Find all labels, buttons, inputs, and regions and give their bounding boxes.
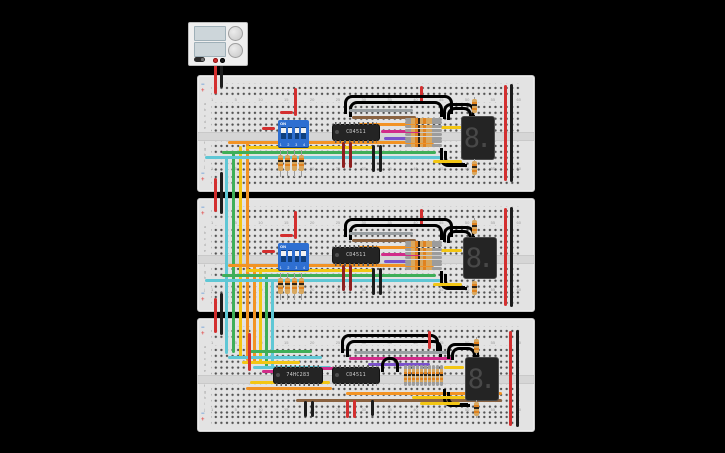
resistor[interactable] (285, 150, 290, 177)
wire[interactable] (222, 151, 436, 154)
wire[interactable] (205, 279, 441, 282)
dip-on-label: ON (280, 121, 286, 126)
wire[interactable] (444, 366, 464, 369)
resistor[interactable] (405, 248, 442, 251)
wire[interactable] (246, 387, 332, 390)
circuit-canvas: −+ 151015202530354045505560 abcde fghij … (0, 0, 725, 453)
wire[interactable] (246, 269, 374, 272)
dip-position-numbers: 1 2 3 4 (278, 143, 309, 147)
wire[interactable] (304, 401, 307, 417)
wire[interactable] (420, 402, 460, 405)
row-letters-top: abcde (204, 345, 209, 373)
resistor[interactable] (405, 256, 442, 259)
ic-label: CD4511 (333, 252, 379, 258)
wire[interactable] (262, 127, 275, 130)
wire[interactable] (433, 160, 462, 163)
wire[interactable] (444, 274, 465, 289)
rail-plus-label: + (201, 417, 209, 423)
wire[interactable] (381, 357, 399, 372)
ic-cd4511-board3[interactable]: CD4511 (333, 368, 379, 383)
wire[interactable] (294, 211, 297, 239)
row-letters-bottom: fghij (204, 384, 209, 412)
wire[interactable] (214, 298, 217, 333)
dip-slider[interactable] (295, 127, 300, 139)
wire[interactable] (294, 88, 297, 116)
rail-labels: −+ (201, 171, 209, 183)
rail-plus-label: + (201, 331, 209, 337)
wire[interactable] (342, 142, 345, 168)
resistor[interactable] (405, 241, 442, 244)
resistor[interactable] (405, 137, 442, 140)
wire[interactable] (214, 178, 217, 212)
dip-slider[interactable] (288, 127, 293, 139)
resistor[interactable] (405, 129, 442, 132)
wire[interactable] (433, 283, 462, 286)
resistor[interactable] (420, 365, 423, 386)
resistor[interactable] (405, 144, 442, 147)
wire[interactable] (228, 356, 322, 359)
rail-plus-label: + (201, 297, 209, 303)
wire[interactable] (280, 111, 293, 114)
dip-slider[interactable] (301, 250, 306, 262)
wire[interactable] (246, 146, 374, 149)
row-letters-bottom: fghij (204, 141, 209, 169)
dip-switch-2[interactable]: ON 1 2 3 4 (278, 243, 309, 270)
resistor[interactable] (278, 150, 283, 177)
rail-plus-label: + (201, 211, 209, 217)
resistor[interactable] (405, 121, 442, 124)
psu-current-display (194, 42, 226, 57)
dip-sliders[interactable] (281, 127, 306, 139)
resistor[interactable] (405, 260, 442, 263)
wire[interactable] (280, 234, 293, 237)
wire[interactable] (265, 274, 268, 367)
dip-slider[interactable] (281, 250, 286, 262)
row-letters-top: abcde (204, 225, 209, 253)
wire[interactable] (222, 274, 436, 277)
resistor[interactable] (285, 273, 290, 300)
wire[interactable] (248, 333, 251, 371)
resistor[interactable] (472, 97, 477, 115)
wire[interactable] (441, 126, 462, 129)
rail-labels: −+ (201, 291, 209, 303)
resistor[interactable] (440, 365, 443, 386)
wire[interactable] (246, 141, 249, 361)
ic-label: CD4511 (333, 129, 379, 135)
wire[interactable] (510, 84, 513, 182)
resistor[interactable] (405, 252, 442, 255)
wire[interactable] (262, 250, 275, 253)
wire[interactable] (320, 367, 334, 370)
wire[interactable] (349, 142, 352, 168)
wire[interactable] (379, 145, 382, 172)
wire[interactable] (346, 400, 349, 418)
dip-slider[interactable] (301, 127, 306, 139)
ic-label: 74HC283 (274, 372, 322, 378)
dip-slider[interactable] (288, 250, 293, 262)
psu-negative-terminal[interactable] (220, 58, 225, 63)
resistor[interactable] (405, 244, 442, 247)
psu-voltage-display (194, 26, 226, 41)
dip-position-numbers: 1 2 3 4 (278, 266, 309, 270)
wire[interactable] (220, 172, 223, 214)
dip-switch-1[interactable]: ON 1 2 3 4 (278, 120, 309, 147)
psu-positive-terminal[interactable] (213, 58, 218, 63)
row-letters-bottom: fghij (204, 264, 209, 292)
seven-segment-display-2[interactable]: 8. (463, 237, 497, 279)
resistor[interactable] (404, 365, 407, 386)
resistor[interactable] (299, 273, 304, 300)
psu-voltage-knob[interactable] (228, 26, 243, 41)
dip-on-label: ON (280, 244, 286, 249)
wire[interactable] (372, 268, 375, 295)
resistor[interactable] (428, 365, 431, 386)
wire[interactable] (225, 156, 228, 354)
resistor[interactable] (412, 365, 415, 386)
psu-current-knob[interactable] (228, 43, 243, 58)
display-digit: 8. (464, 125, 489, 152)
wire[interactable] (504, 85, 507, 181)
wire[interactable] (205, 156, 441, 159)
wire[interactable] (516, 330, 519, 427)
resistor[interactable] (292, 273, 297, 300)
resistor[interactable] (299, 150, 304, 177)
wire[interactable] (509, 331, 512, 426)
seven-segment-display-3[interactable]: 8. (465, 357, 499, 401)
resistor[interactable] (416, 365, 419, 386)
wire[interactable] (354, 351, 448, 354)
ic-cd4511-board1[interactable]: CD4511 (333, 125, 379, 140)
rail-labels: −+ (201, 411, 209, 423)
wire[interactable] (228, 264, 434, 267)
wire[interactable] (228, 141, 434, 144)
resistor[interactable] (424, 365, 427, 386)
wire[interactable] (379, 268, 382, 295)
wire[interactable] (510, 207, 513, 307)
psu-power-button[interactable] (194, 57, 205, 62)
resistor[interactable] (405, 125, 442, 128)
wire[interactable] (311, 401, 314, 417)
row-letters-top: abcde (204, 102, 209, 130)
resistor[interactable] (472, 279, 477, 297)
dip-slider[interactable] (295, 250, 300, 262)
resistor[interactable] (408, 365, 411, 386)
wire[interactable] (232, 151, 235, 353)
resistor[interactable] (278, 273, 283, 300)
resistor[interactable] (432, 365, 435, 386)
dip-slider[interactable] (281, 127, 286, 139)
wire[interactable] (342, 265, 345, 291)
wire[interactable] (371, 400, 374, 416)
wire[interactable] (250, 350, 312, 353)
power-supply[interactable] (188, 22, 248, 66)
rail-labels: −+ (201, 325, 209, 337)
resistor[interactable] (474, 337, 479, 355)
wire[interactable] (412, 396, 465, 399)
resistor[interactable] (405, 118, 442, 121)
wire[interactable] (372, 145, 375, 172)
resistor[interactable] (472, 159, 477, 177)
dip-sliders[interactable] (281, 250, 306, 262)
rail-labels: −+ (201, 205, 209, 217)
wire[interactable] (349, 265, 352, 291)
wire[interactable] (353, 400, 356, 418)
resistor[interactable] (405, 140, 442, 143)
display-digit: 8. (468, 366, 493, 393)
wire[interactable] (239, 146, 242, 358)
resistor[interactable] (472, 218, 477, 236)
resistor[interactable] (474, 400, 479, 418)
rail-labels: −+ (201, 82, 209, 94)
resistor[interactable] (405, 263, 442, 266)
resistor[interactable] (405, 267, 442, 270)
display-digit: 8. (466, 245, 491, 272)
resistor[interactable] (436, 365, 439, 386)
wire[interactable] (349, 357, 453, 360)
wire[interactable] (349, 109, 413, 112)
resistor[interactable] (405, 133, 442, 136)
ic-74hc283-board3[interactable]: 74HC283 (274, 368, 322, 383)
wire[interactable] (349, 232, 413, 235)
wire[interactable] (220, 293, 223, 335)
seven-segment-display-1[interactable]: 8. (461, 116, 495, 160)
wire[interactable] (504, 208, 507, 306)
wire[interactable] (428, 331, 431, 349)
rail-plus-label: + (201, 88, 209, 94)
wire[interactable] (441, 249, 462, 252)
rail-plus-label: + (201, 177, 209, 183)
resistor[interactable] (292, 150, 297, 177)
ic-cd4511-board2[interactable]: CD4511 (333, 248, 379, 263)
ic-label: CD4511 (333, 372, 379, 378)
